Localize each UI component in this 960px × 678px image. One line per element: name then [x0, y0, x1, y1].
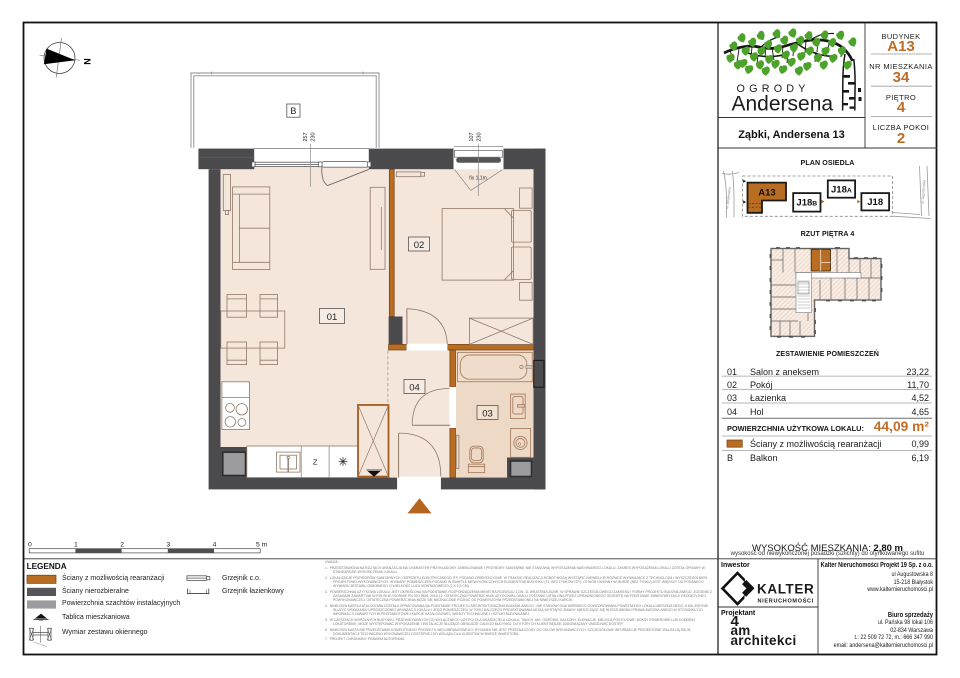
- svg-text:A13: A13: [758, 187, 775, 198]
- svg-text:03: 03: [482, 408, 493, 419]
- svg-text:B: B: [290, 106, 296, 116]
- svg-text:107: 107: [469, 132, 475, 141]
- svg-text:0: 0: [28, 542, 32, 549]
- svg-text:230: 230: [477, 132, 483, 141]
- svg-text:3: 3: [166, 542, 170, 549]
- svg-text:NIERUCHOMOŚCI: NIERUCHOMOŚCI: [758, 598, 814, 605]
- svg-text:5 m: 5 m: [256, 542, 268, 549]
- svg-text:Z: Z: [313, 458, 318, 467]
- svg-text:ul. Jagiellońska: ul. Jagiellońska: [921, 180, 927, 205]
- svg-text:02: 02: [414, 240, 425, 251]
- svg-text:N: N: [82, 58, 92, 65]
- svg-text:2: 2: [120, 542, 124, 549]
- svg-text:4: 4: [213, 542, 217, 549]
- svg-text:1: 1: [74, 542, 78, 549]
- svg-text:230: 230: [311, 132, 317, 141]
- svg-text:257: 257: [303, 132, 309, 141]
- svg-text:04: 04: [409, 382, 420, 393]
- svg-text:o: o: [518, 441, 521, 447]
- svg-text:01: 01: [327, 312, 338, 323]
- svg-text:Andersena: Andersena: [732, 92, 834, 115]
- svg-text:J18: J18: [867, 197, 883, 208]
